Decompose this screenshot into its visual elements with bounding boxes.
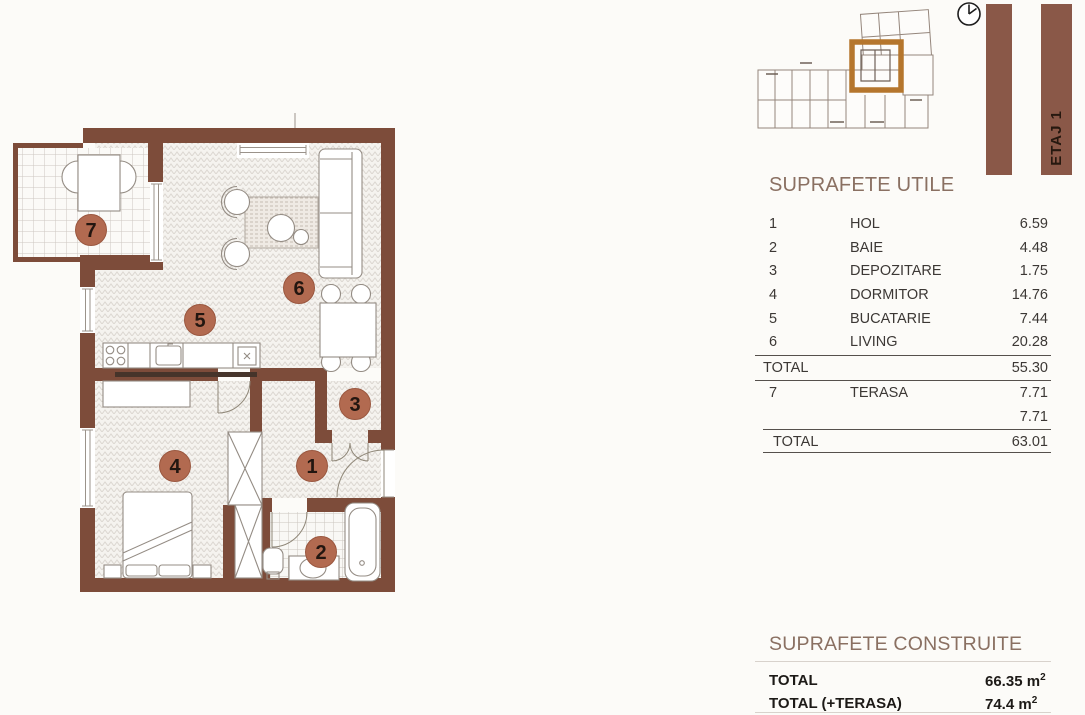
svg-text:5: 5: [194, 310, 205, 332]
room-badge-dormitor: 4: [160, 451, 191, 482]
room-badge-depozitare: 3: [340, 389, 371, 420]
nightstand-left: [104, 565, 121, 578]
unit-sup: 2: [1032, 695, 1038, 706]
divider: [755, 661, 1051, 662]
entrance-opening: [381, 450, 395, 497]
terrace-table: [78, 155, 120, 211]
kitchen-counter-shadow: [115, 372, 257, 377]
pillow-right: [159, 565, 190, 576]
wall-closet-side: [223, 505, 235, 578]
bed: [123, 492, 192, 578]
terrace-wall-top: [13, 143, 83, 148]
wall-exterior-top: [83, 128, 395, 143]
svg-text:7: 7: [85, 220, 96, 242]
bathtub-icon: [345, 503, 380, 581]
wall-storage-bottom-right: [368, 430, 395, 443]
pillow-left: [126, 565, 157, 576]
wall-storage-bottom-left: [315, 430, 332, 443]
built-total-value: 66.35: [985, 673, 1023, 690]
floor-plan-sheet: { "key_plan": { "floor_label": "ETAJ 1" …: [0, 0, 1085, 715]
svg-text:4: 4: [169, 456, 181, 478]
room-badge-bucatarie: 5: [185, 305, 216, 336]
closet-lower: [235, 505, 262, 578]
terrace-sliding-door: [150, 182, 163, 262]
wall-stub-closet: [250, 368, 262, 432]
room-badge-terasa: 7: [76, 215, 107, 246]
built-total-row: TOTAL 66.35 m2: [755, 669, 1051, 692]
wall-terrace-stub: [148, 128, 163, 182]
built-total-label: TOTAL: [755, 672, 985, 689]
room-badge-baie: 2: [306, 537, 337, 568]
terrace-wall-left: [13, 143, 18, 262]
window-kitchen-left: [80, 287, 95, 333]
sofa: [319, 149, 362, 278]
nightstand-right: [193, 565, 211, 578]
closet-upper: [228, 432, 262, 505]
divider: [755, 712, 1051, 713]
svg-text:2: 2: [315, 542, 326, 564]
window-bedroom-left: [80, 428, 95, 508]
wall-exterior-bottom: [83, 578, 395, 592]
dining-table: [320, 303, 376, 357]
unit: m: [1027, 673, 1040, 690]
wall-exterior-right: [381, 128, 395, 592]
window-living-top: [237, 143, 309, 158]
built-total-terrace-value: 74.4: [985, 696, 1014, 713]
built-areas-title: SUPRAFETE CONSTRUITE: [769, 633, 1022, 656]
unit: m: [1018, 696, 1031, 713]
svg-text:6: 6: [293, 278, 304, 300]
svg-text:3: 3: [349, 394, 360, 416]
room-badge-hol: 1: [297, 451, 328, 482]
svg-text:1: 1: [306, 456, 317, 478]
room-badge-living: 6: [284, 273, 315, 304]
kitchen-counter: [103, 343, 260, 368]
unit-sup: 2: [1040, 672, 1046, 683]
terrace-wall-bottom: [13, 257, 83, 262]
built-areas-panel: SUPRAFETE CONSTRUITE TOTAL 66.35 m2 TOTA…: [755, 0, 1051, 715]
built-total-terrace-label: TOTAL (+TERASA): [755, 695, 985, 712]
wardrobe: [103, 381, 190, 407]
